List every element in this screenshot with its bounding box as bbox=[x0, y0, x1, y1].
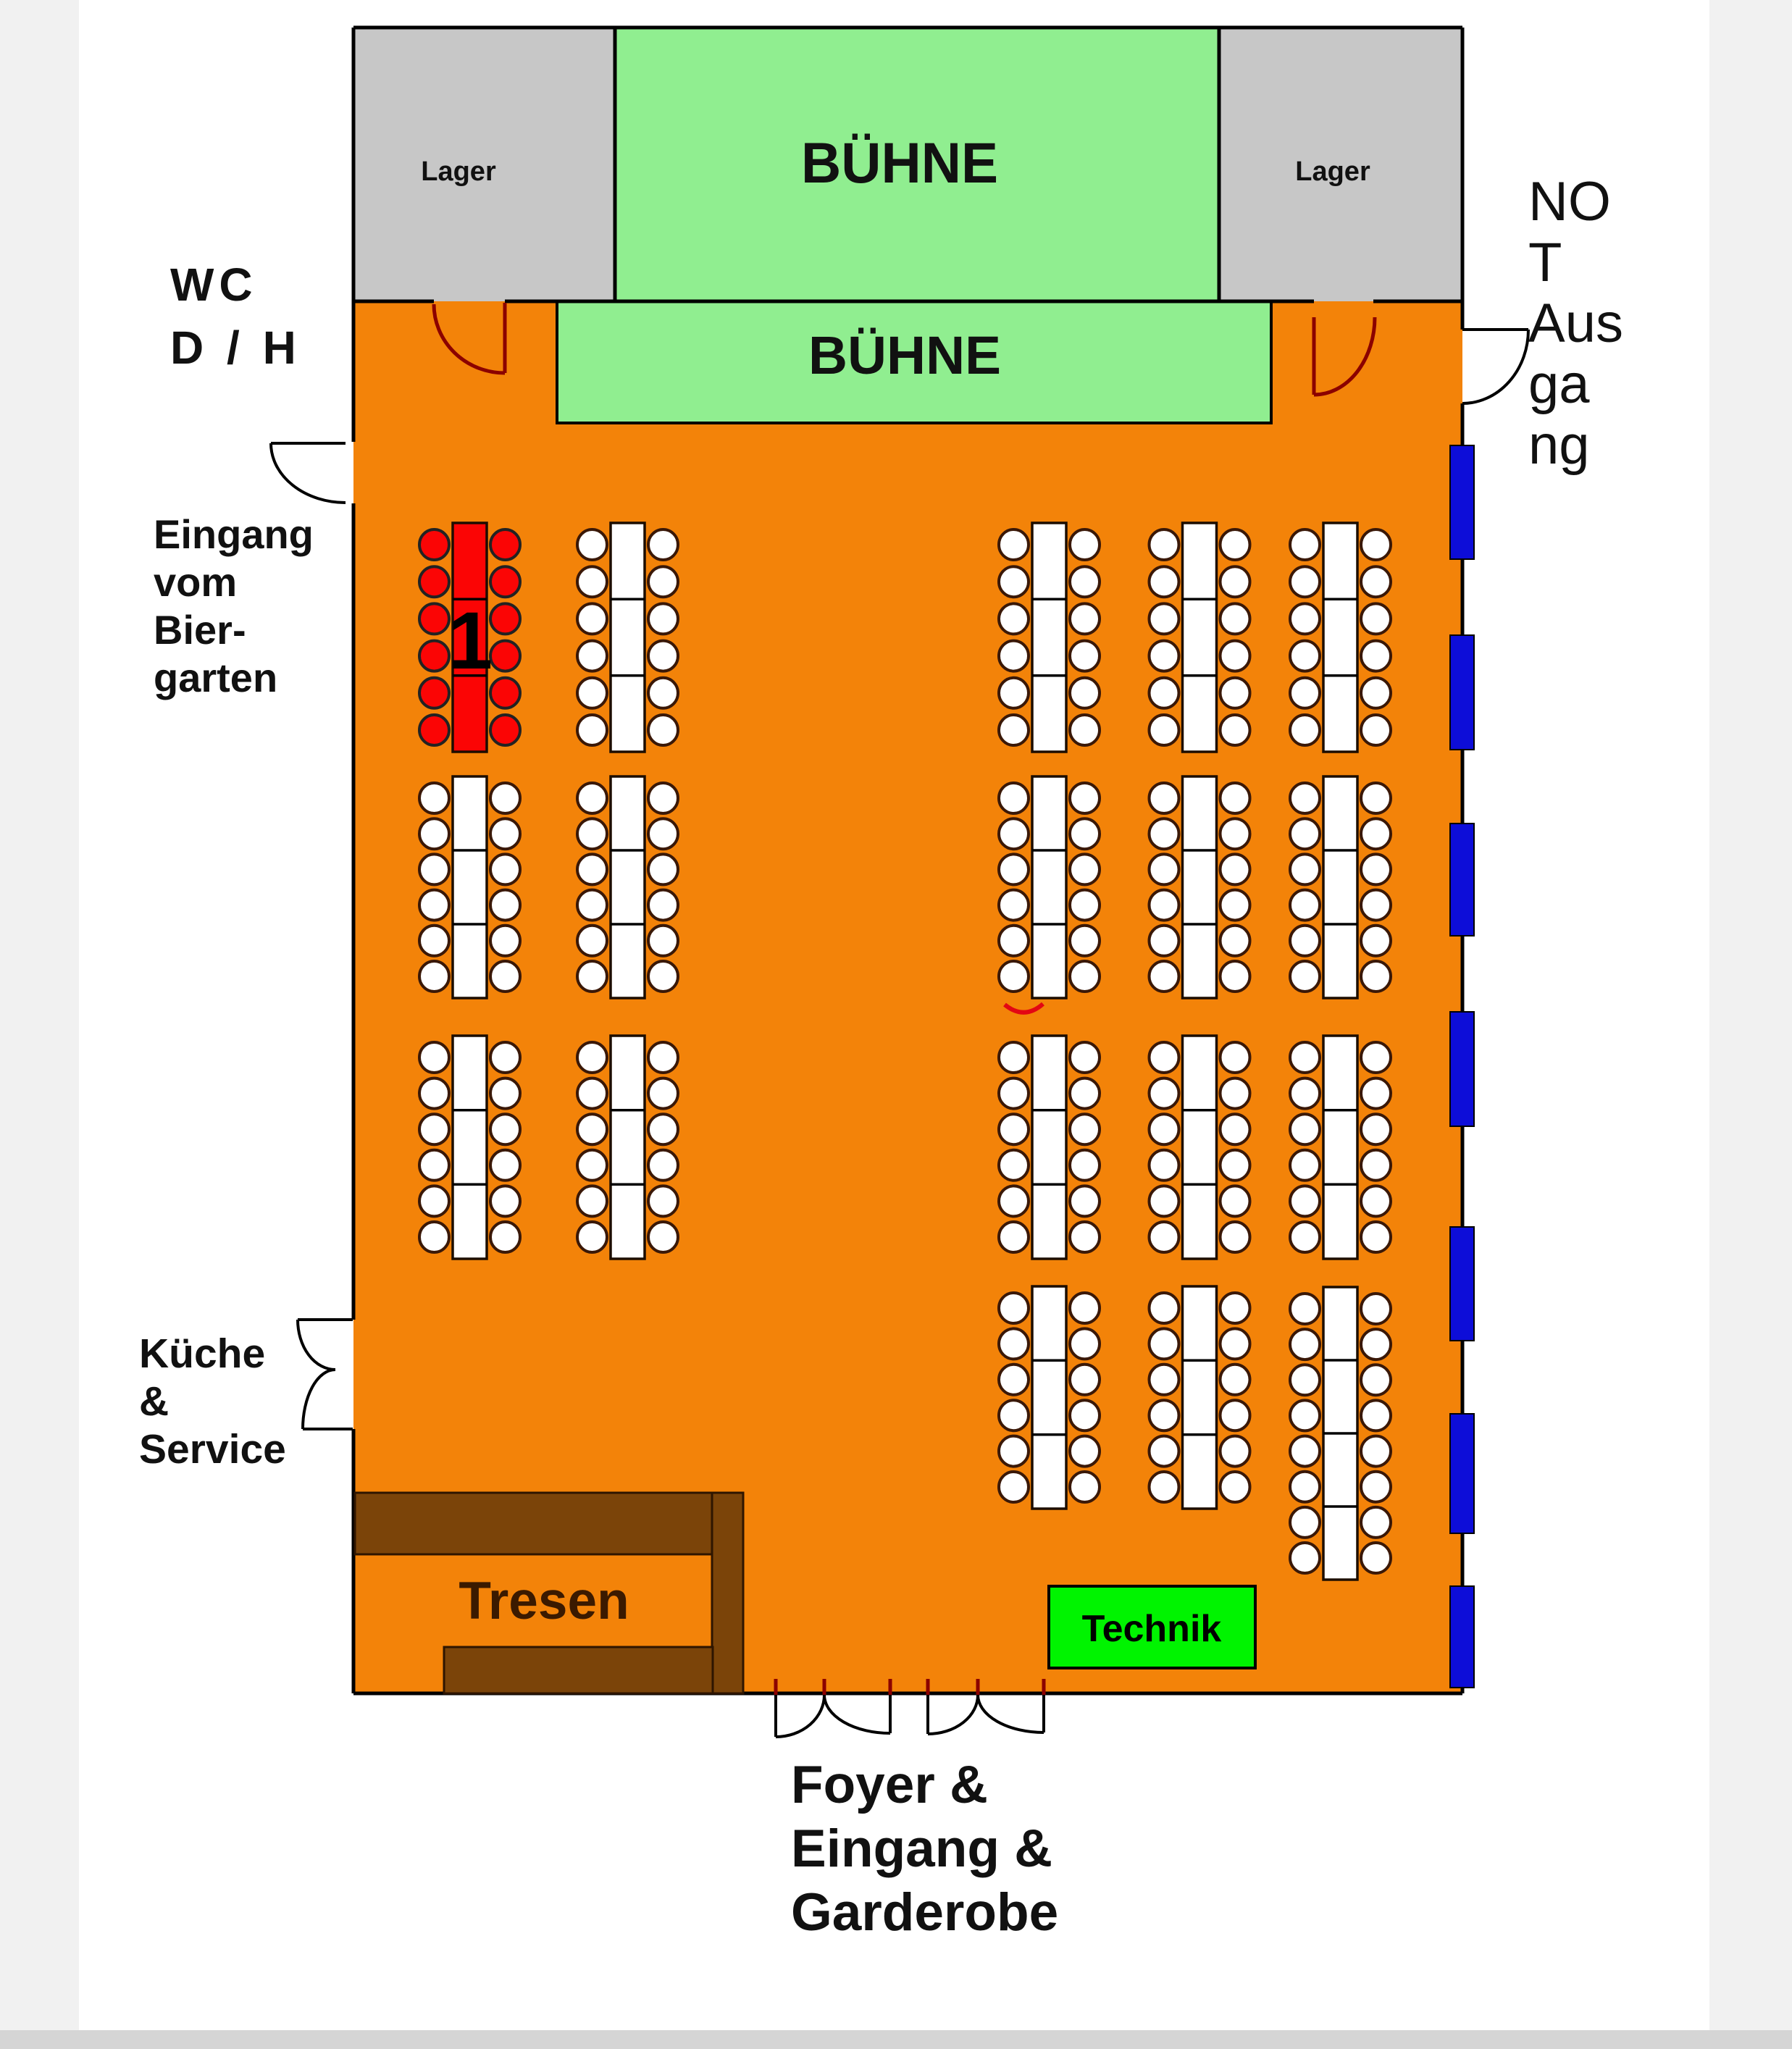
svg-text:ga: ga bbox=[1528, 353, 1590, 415]
svg-text:&: & bbox=[139, 1378, 169, 1425]
svg-text:NO: NO bbox=[1528, 171, 1611, 232]
svg-text:Aus: Aus bbox=[1528, 293, 1623, 354]
svg-text:ng: ng bbox=[1528, 414, 1590, 476]
svg-text:garten: garten bbox=[154, 655, 277, 700]
svg-text:BÜHNE: BÜHNE bbox=[801, 130, 998, 195]
svg-text:vom: vom bbox=[154, 559, 237, 605]
svg-text:Eingang: Eingang bbox=[154, 511, 314, 557]
svg-text:Bier-: Bier- bbox=[154, 607, 246, 653]
svg-text:Lager: Lager bbox=[1295, 156, 1370, 187]
svg-text:Küche: Küche bbox=[139, 1331, 265, 1377]
svg-text:Service: Service bbox=[139, 1426, 286, 1472]
svg-text:1: 1 bbox=[448, 595, 493, 686]
svg-text:Eingang &: Eingang & bbox=[791, 1819, 1052, 1878]
svg-text:Garderobe: Garderobe bbox=[791, 1883, 1058, 1942]
svg-text:D / H: D / H bbox=[170, 322, 301, 374]
svg-text:Technik: Technik bbox=[1082, 1608, 1222, 1650]
svg-text:T: T bbox=[1528, 232, 1562, 293]
svg-text:BÜHNE: BÜHNE bbox=[808, 325, 1001, 385]
svg-text:Lager: Lager bbox=[421, 156, 496, 187]
svg-text:Foyer &: Foyer & bbox=[791, 1756, 988, 1814]
svg-text:WC: WC bbox=[170, 259, 258, 311]
svg-text:Tresen: Tresen bbox=[459, 1572, 629, 1630]
